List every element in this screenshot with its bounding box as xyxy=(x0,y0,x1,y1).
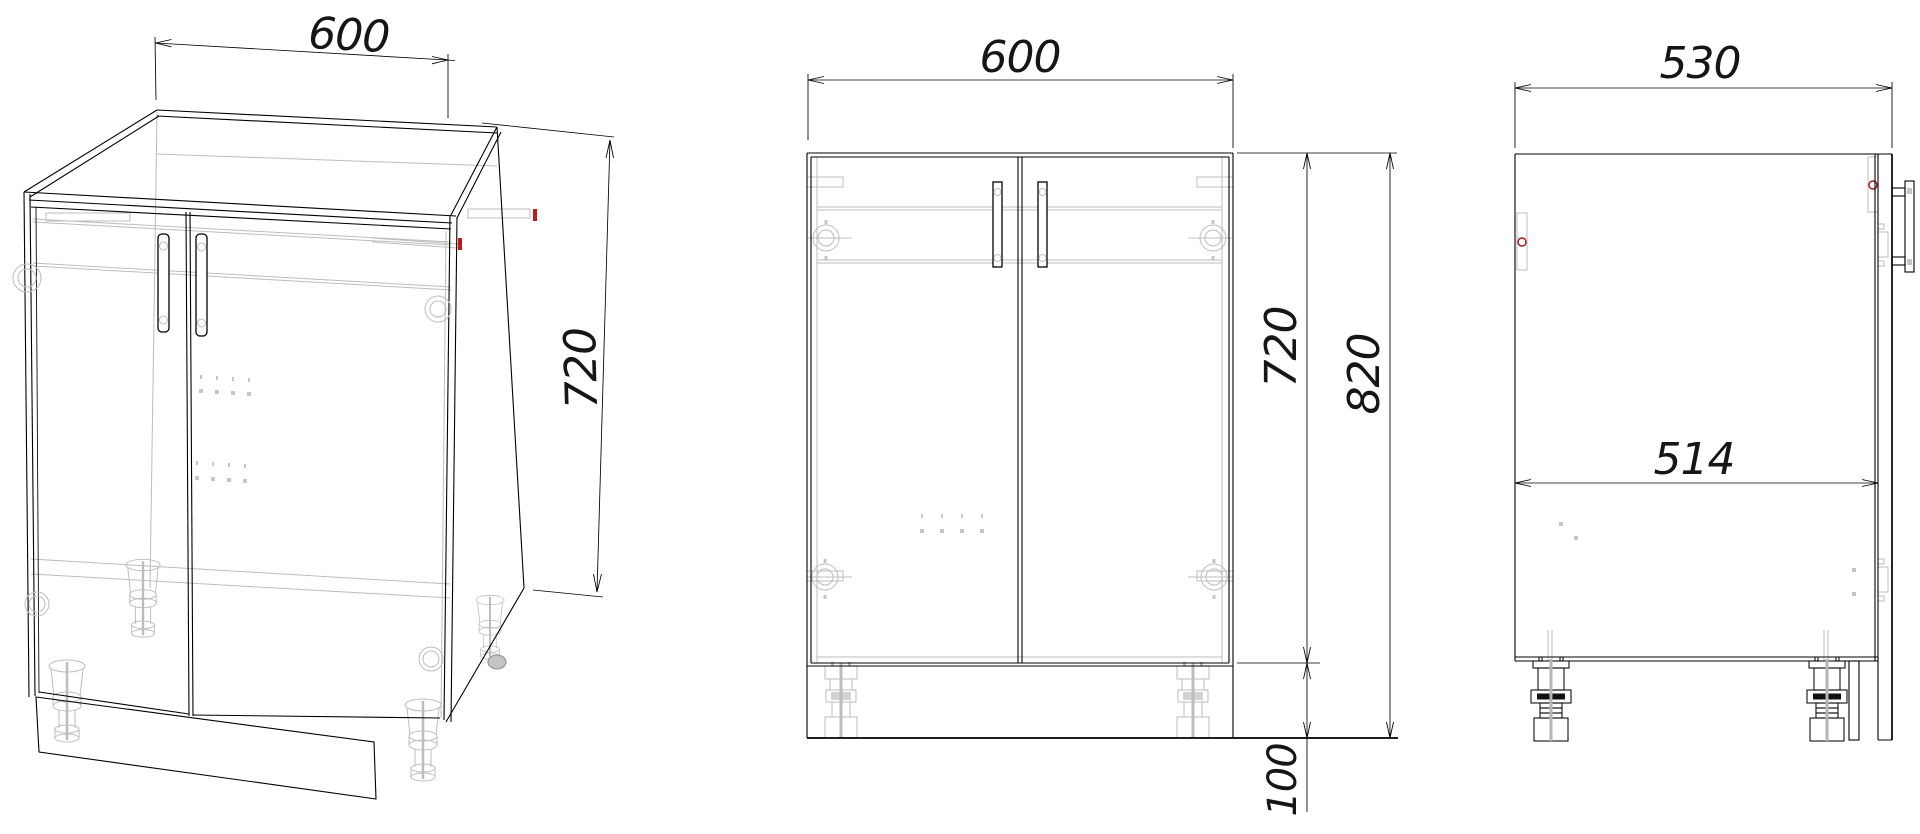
plinth-board xyxy=(36,697,376,799)
hinge-plate xyxy=(807,177,843,187)
front-total-height-dim-label: 820 xyxy=(1339,334,1390,415)
front-width-dim-label: 600 xyxy=(980,32,1061,83)
iso-legs xyxy=(49,559,506,781)
hinge-cup-ticks xyxy=(824,220,1216,599)
red-fitting-marker xyxy=(1518,238,1526,246)
leg-foot xyxy=(488,655,506,669)
drawing-canvas: 600 720 xyxy=(0,0,1920,834)
side-depth-dimension: 530 xyxy=(1515,38,1892,148)
front-total-height-dimension: 820 xyxy=(1339,153,1394,738)
cabinet-technical-drawing: 600 720 xyxy=(0,0,1920,834)
iso-height-dimension: 720 xyxy=(482,123,614,597)
iso-width-dimension: 600 xyxy=(155,8,455,118)
red-fitting-marker xyxy=(458,238,462,250)
door-gap xyxy=(1018,157,1022,663)
door-handle xyxy=(158,234,169,332)
side-inner-depth-dim-label: 514 xyxy=(1654,434,1735,485)
iso-height-dim-label: 720 xyxy=(555,327,608,409)
front-leg-height-dimension: 100 xyxy=(1260,663,1311,817)
drill-marks xyxy=(195,375,251,483)
hinge-plate xyxy=(46,213,130,221)
red-fitting-marker xyxy=(1869,181,1877,189)
side-view: 530 514 xyxy=(1515,38,1914,741)
hinge-cups xyxy=(13,264,451,671)
isometric-view: 600 720 xyxy=(13,8,614,799)
front-view: 600 720 100 820 xyxy=(807,32,1398,817)
plinth-section xyxy=(1849,661,1859,740)
front-leg-height-dim-label: 100 xyxy=(1260,743,1306,816)
side-hidden-lines xyxy=(1517,157,1912,661)
door-gap xyxy=(186,212,193,716)
hinge-arm xyxy=(1878,567,1888,592)
hinge-plate xyxy=(1197,177,1233,187)
front-carcass-height-dim-label: 720 xyxy=(1256,307,1307,388)
drill-marks xyxy=(920,514,984,533)
hinge-cups xyxy=(812,225,1227,590)
hinge-plate xyxy=(468,209,530,218)
iso-width-dim-label: 600 xyxy=(307,8,391,63)
front-carcass xyxy=(807,153,1398,738)
side-depth-dim-label: 530 xyxy=(1660,38,1741,89)
side-inner-depth-dimension: 514 xyxy=(1515,434,1878,487)
handle-profile xyxy=(1892,181,1914,272)
front-hidden-lines xyxy=(807,157,1233,663)
hinge-arm xyxy=(1878,232,1888,257)
hinge-plate xyxy=(1197,571,1233,581)
red-fitting-marker xyxy=(533,209,537,221)
front-width-dimension: 600 xyxy=(808,32,1233,148)
